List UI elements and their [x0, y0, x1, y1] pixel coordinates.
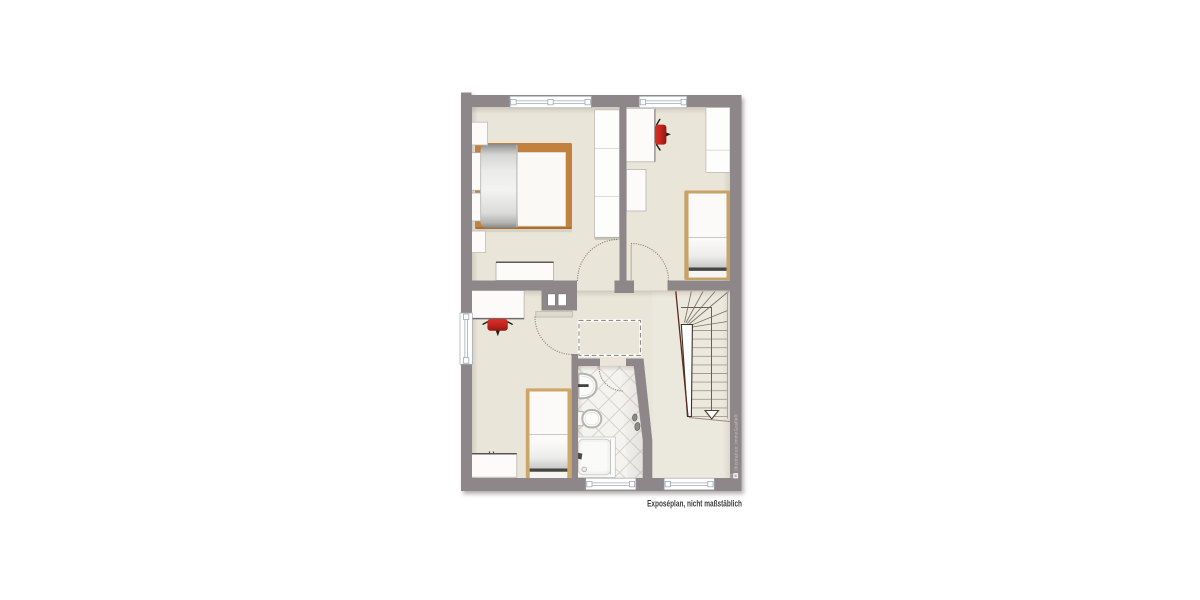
- svg-text:©: ©: [730, 473, 734, 480]
- svg-text:Illustration: immoGrafik®: Illustration: immoGrafik®: [733, 414, 738, 471]
- svg-text:Exposéplan, nicht maßstäblich: Exposéplan, nicht maßstäblich: [647, 499, 742, 509]
